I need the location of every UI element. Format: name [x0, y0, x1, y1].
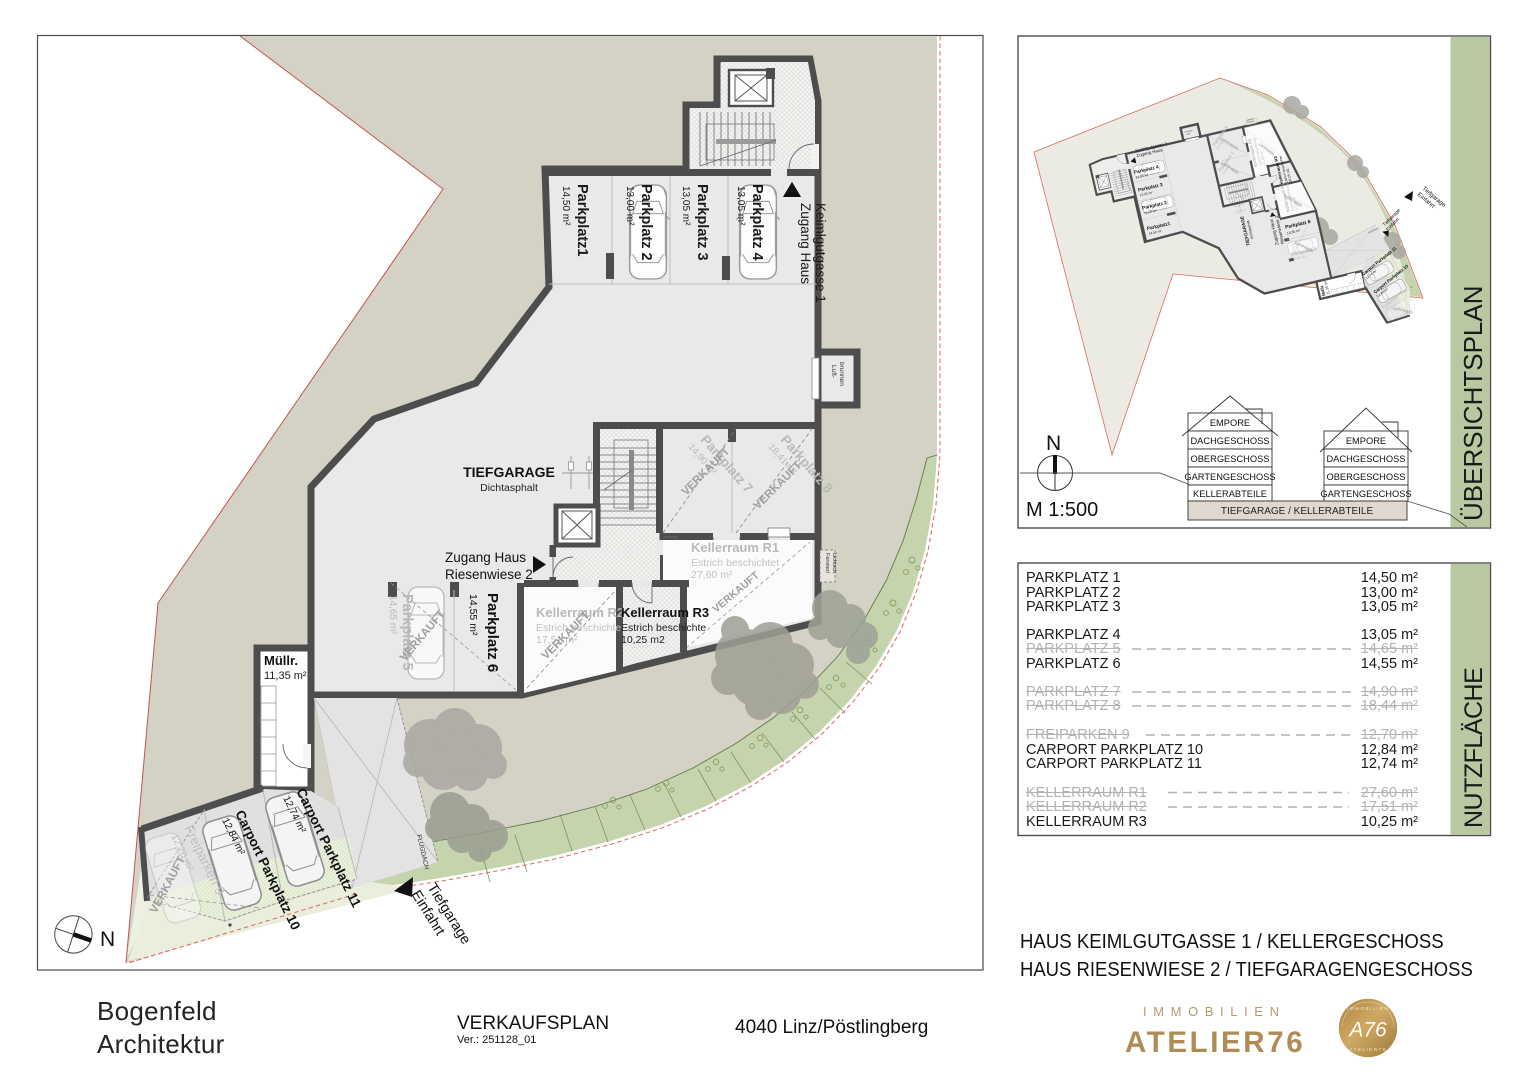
svg-text:OBERGESCHOSS: OBERGESCHOSS — [1190, 454, 1269, 464]
svg-text:Kellerraum R3: Kellerraum R3 — [621, 605, 709, 620]
svg-text:Zugang Haus: Zugang Haus — [445, 550, 526, 565]
svg-text:Luft-: Luft- — [830, 365, 837, 378]
svg-text:DACHGESCHOSS: DACHGESCHOSS — [1190, 436, 1269, 446]
svg-text:DACHGESCHOSS: DACHGESCHOSS — [1326, 454, 1405, 464]
svg-text:Fenster/: Fenster/ — [824, 553, 830, 574]
svg-text:Parkplatz 4: Parkplatz 4 — [749, 184, 765, 261]
svg-text:Lichtsch.: Lichtsch. — [831, 553, 837, 575]
svg-text:TIEFGARAGE: TIEFGARAGE — [463, 464, 555, 480]
svg-text:N: N — [100, 928, 115, 951]
svg-text:Dichtasphalt: Dichtasphalt — [480, 482, 538, 494]
svg-text:Parkplatz 6: Parkplatz 6 — [484, 593, 501, 672]
svg-text:13,00 m²: 13,00 m² — [624, 186, 635, 226]
svg-text:Keimlgutgasse 1: Keimlgutgasse 1 — [813, 203, 828, 303]
svg-text:IMMOBILIEN: IMMOBILIEN — [1347, 1006, 1389, 1012]
svg-text:M 1:500: M 1:500 — [1026, 499, 1098, 521]
svg-text:Parkplatz1: Parkplatz1 — [574, 184, 590, 257]
svg-text:13,05 m²: 13,05 m² — [735, 186, 746, 226]
svg-text:GARTENGESCHOSS: GARTENGESCHOSS — [1320, 489, 1411, 499]
svg-text:TIEFGARAGE / KELLERABTEILE: TIEFGARAGE / KELLERABTEILE — [1221, 506, 1374, 517]
svg-text:27,60 m²: 27,60 m² — [691, 569, 733, 581]
svg-text:14,55 m²: 14,55 m² — [467, 594, 479, 636]
svg-text:Parkplatz 2: Parkplatz 2 — [638, 184, 654, 261]
svg-text:10,25 m2: 10,25 m2 — [621, 634, 665, 646]
svg-text:Estrich beschichtet: Estrich beschichtet — [691, 557, 779, 569]
svg-text:Riesenwiese 2: Riesenwiese 2 — [445, 567, 533, 582]
svg-text:Kellerraum R1: Kellerraum R1 — [691, 540, 779, 555]
svg-text:13,05 m²: 13,05 m² — [680, 186, 691, 226]
svg-text:N: N — [1046, 432, 1061, 455]
svg-text:EMPORE: EMPORE — [1346, 436, 1386, 446]
svg-text:KELLERABTEILE: KELLERABTEILE — [1193, 489, 1267, 499]
svg-text:ÜBERSICHTSPLAN: ÜBERSICHTSPLAN — [1458, 286, 1488, 522]
svg-text:brunnen: brunnen — [838, 362, 845, 386]
svg-text:Müllr.: Müllr. — [264, 653, 298, 668]
svg-text:ATELIER76: ATELIER76 — [1349, 1047, 1387, 1053]
svg-text:OBERGESCHOSS: OBERGESCHOSS — [1326, 472, 1405, 482]
svg-text:GARTENGESCHOSS: GARTENGESCHOSS — [1184, 472, 1275, 482]
svg-text:14,50 m²: 14,50 m² — [560, 186, 571, 226]
svg-text:Parkplatz 3: Parkplatz 3 — [694, 184, 710, 261]
svg-text:Estrich beschichte: Estrich beschichte — [621, 622, 706, 634]
svg-text:Zugang Haus: Zugang Haus — [798, 203, 813, 284]
svg-text:11,35 m²: 11,35 m² — [264, 670, 307, 682]
svg-text:14,65 m²: 14,65 m² — [387, 595, 398, 635]
svg-text:NUTZFLÄCHE: NUTZFLÄCHE — [1460, 668, 1488, 828]
svg-text:EMPORE: EMPORE — [1210, 418, 1250, 428]
svg-text:A76: A76 — [1347, 1019, 1387, 1042]
